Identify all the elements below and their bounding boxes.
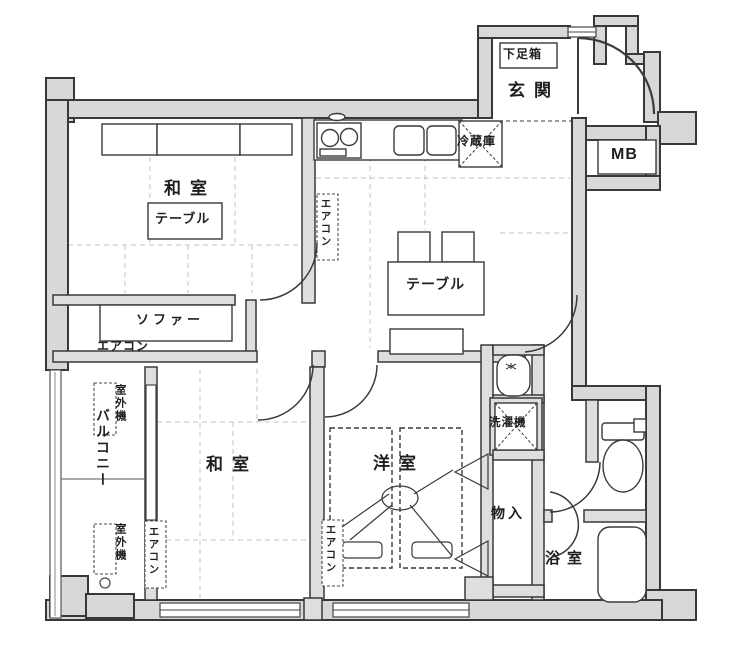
label-aircon-kitchen: エアコン xyxy=(320,198,331,248)
window-washitsu2-balcony xyxy=(146,385,156,520)
closet-section xyxy=(240,124,292,155)
label-sofa: ソファー xyxy=(136,313,204,326)
toilet-bowl xyxy=(603,440,643,492)
closet-section xyxy=(102,124,157,155)
label-washing-machine: 洗濯機 xyxy=(489,418,527,430)
label-outdoor-unit-2: 室外機 xyxy=(114,523,125,562)
pillow xyxy=(342,542,382,558)
door-arc-bath xyxy=(550,492,578,557)
pillow xyxy=(412,542,452,558)
label-balcony: バルコニー xyxy=(96,408,110,488)
washbasin xyxy=(497,355,530,396)
label-washitsu-2: 和室 xyxy=(206,456,258,473)
dining-chair xyxy=(442,232,474,262)
closet-section xyxy=(157,124,240,155)
door-arc-washitsu2 xyxy=(258,365,313,420)
label-aircon-yoshitsu: エアコン xyxy=(325,524,336,574)
door-arc-toilet xyxy=(550,462,600,512)
label-outdoor-unit-1: 室外機 xyxy=(114,384,125,423)
label-bathroom: 浴室 xyxy=(545,551,589,566)
outdoor-unit-box-2 xyxy=(94,524,116,574)
grill xyxy=(320,149,346,156)
sink-basin xyxy=(427,126,456,155)
label-meter-box: MB xyxy=(611,147,638,163)
label-aircon-living: エアコン xyxy=(97,340,149,352)
paper-holder xyxy=(634,419,646,432)
entrance-door-arc xyxy=(578,38,654,114)
sink-basin xyxy=(394,126,424,155)
dining-chair xyxy=(398,232,430,262)
burner xyxy=(341,129,358,146)
bathtub xyxy=(598,527,646,602)
label-shoe-box: 下足箱 xyxy=(503,48,542,60)
floor-plan: 玄関 下足箱 MB 冷蔵庫 和室 テーブル エアコン テーブル ソファー エアコ… xyxy=(0,0,750,665)
pillows xyxy=(342,542,452,558)
label-refrigerator: 冷蔵庫 xyxy=(457,135,496,147)
label-table-1: テーブル xyxy=(155,212,210,225)
label-genkan: 玄関 xyxy=(508,82,560,99)
door-arc-hall xyxy=(525,295,577,352)
vent xyxy=(329,114,345,121)
floor-plan-drawing xyxy=(0,0,750,665)
cabinet xyxy=(390,329,463,354)
door-arc-yoshitsu xyxy=(325,365,377,417)
burner xyxy=(322,130,339,147)
label-washitsu-1: 和室 xyxy=(164,180,216,197)
label-aircon-washitsu2: エアコン xyxy=(148,526,159,576)
label-yoshitsu: 洋室 xyxy=(373,455,425,472)
label-storage: 物入 xyxy=(491,506,525,520)
drain-circle xyxy=(100,578,110,588)
label-table-2: テーブル xyxy=(406,277,465,291)
